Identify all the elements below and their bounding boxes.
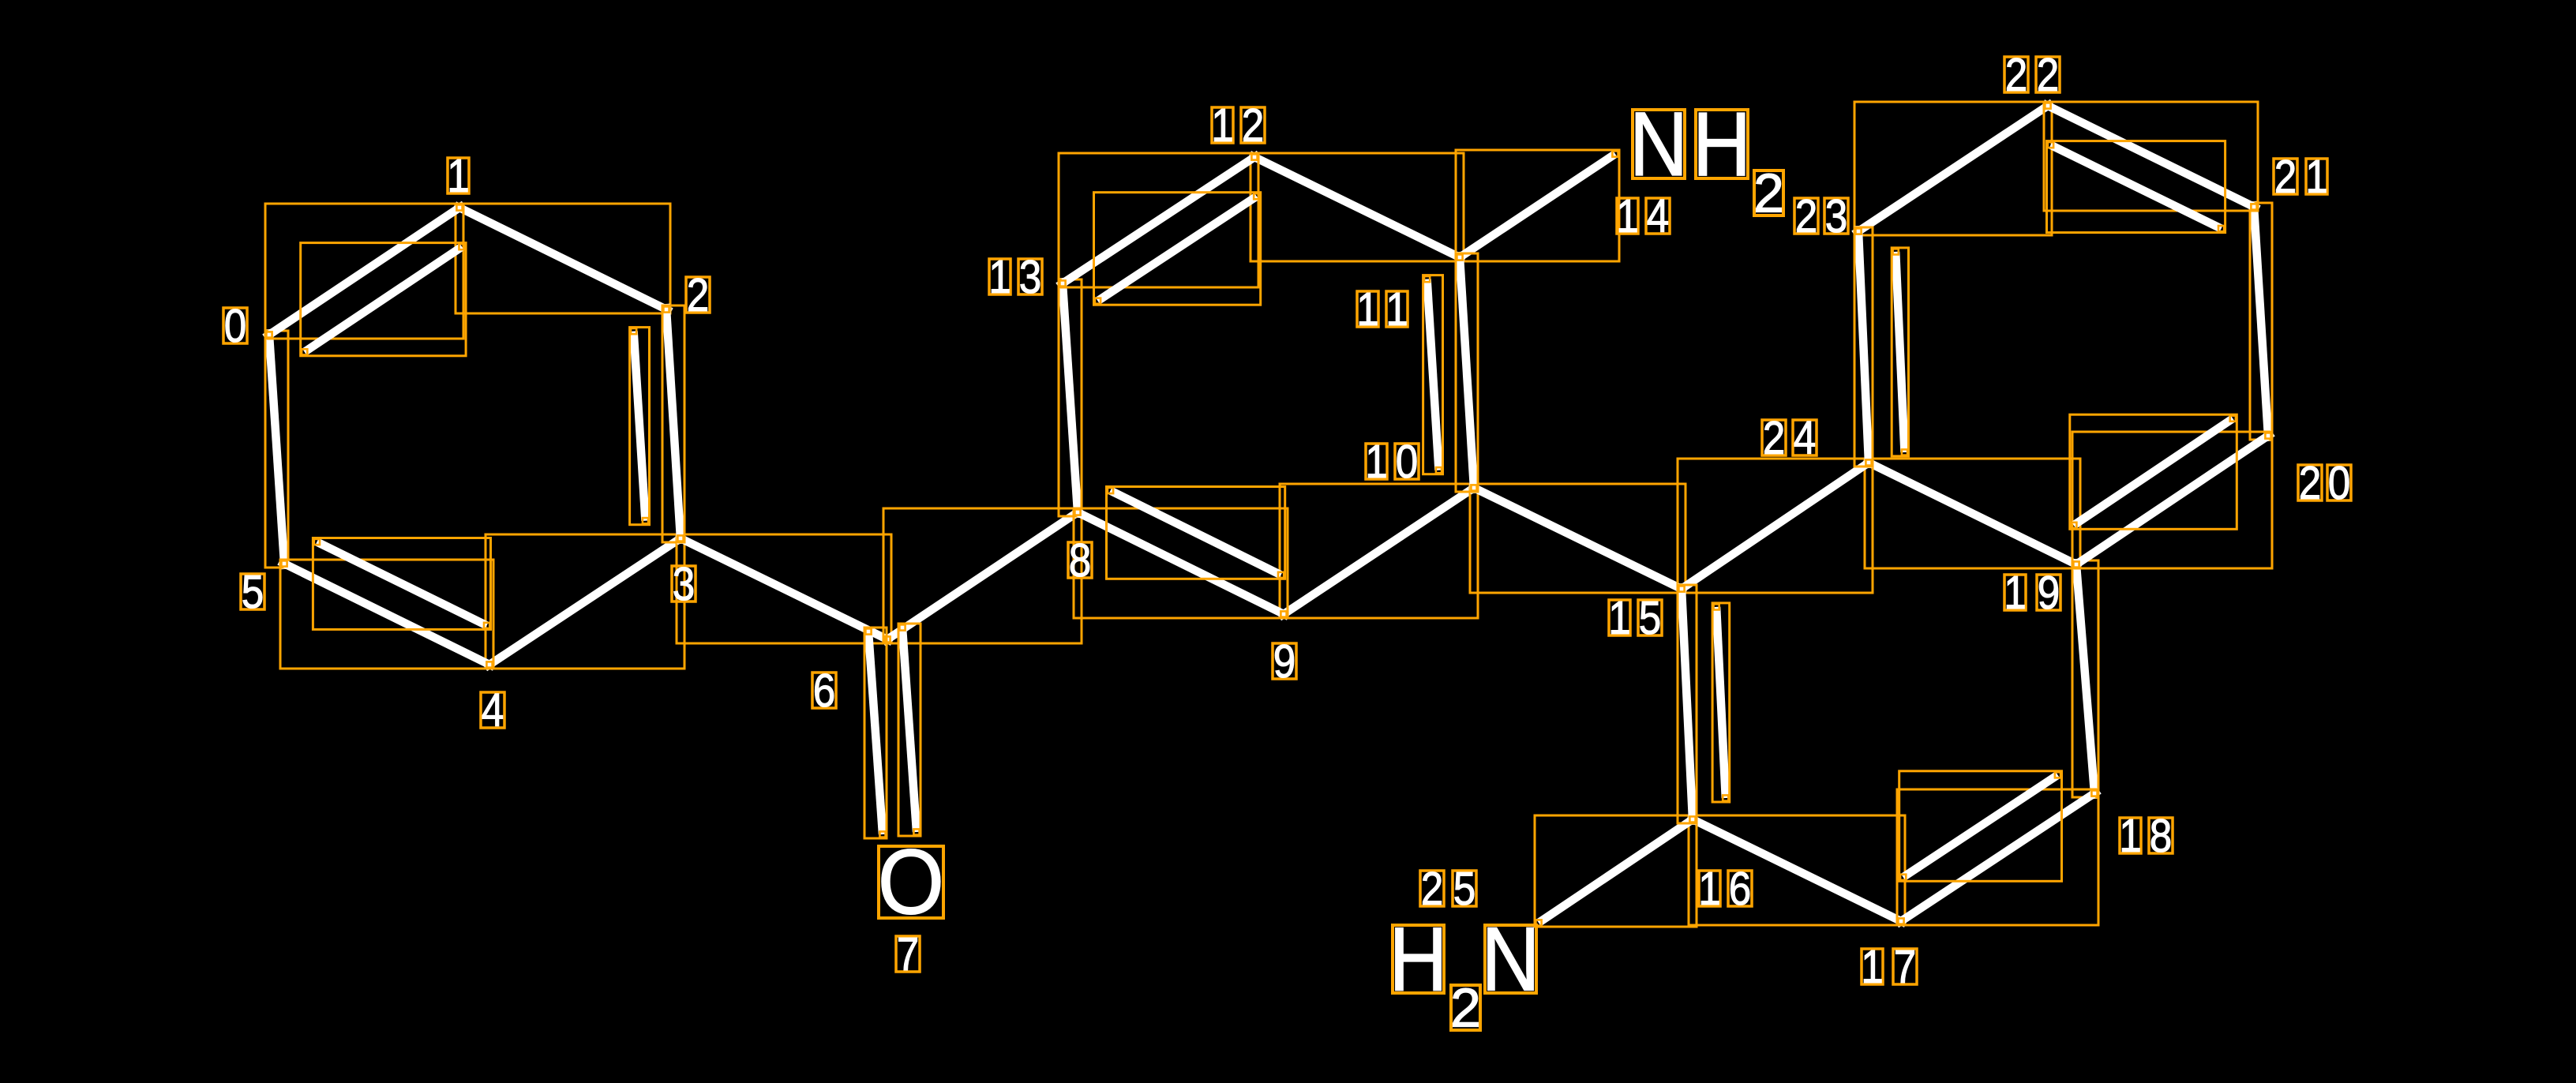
svg-text:3: 3 — [1825, 189, 1848, 242]
svg-text:5: 5 — [1639, 591, 1662, 643]
svg-text:2: 2 — [687, 268, 710, 320]
svg-text:9: 9 — [1273, 635, 1296, 687]
svg-text:2: 2 — [1242, 99, 1265, 151]
svg-text:2: 2 — [2299, 456, 2322, 508]
svg-text:0: 0 — [2328, 456, 2351, 508]
svg-text:4: 4 — [1647, 189, 1670, 242]
svg-text:1: 1 — [1365, 435, 1388, 487]
svg-text:6: 6 — [1729, 862, 1752, 914]
svg-text:2: 2 — [1763, 411, 1786, 463]
svg-text:8: 8 — [2150, 809, 2173, 861]
svg-text:5: 5 — [1453, 862, 1476, 914]
svg-text:1: 1 — [1211, 99, 1234, 151]
svg-text:N: N — [1629, 94, 1689, 195]
svg-text:N: N — [1481, 909, 1540, 1010]
svg-text:1: 1 — [988, 250, 1011, 302]
svg-text:2: 2 — [1450, 977, 1481, 1039]
svg-text:6: 6 — [813, 664, 836, 716]
svg-text:1: 1 — [1861, 940, 1884, 992]
svg-text:2: 2 — [1421, 862, 1444, 914]
svg-text:1: 1 — [1698, 862, 1721, 914]
svg-text:1: 1 — [1356, 283, 1379, 335]
svg-text:2: 2 — [2005, 48, 2028, 100]
svg-text:1: 1 — [1608, 591, 1631, 643]
svg-text:8: 8 — [1069, 534, 1092, 586]
svg-text:1: 1 — [447, 149, 470, 201]
svg-text:1: 1 — [2119, 809, 2142, 861]
svg-text:3: 3 — [1019, 250, 1042, 302]
svg-text:7: 7 — [897, 927, 920, 980]
svg-text:2: 2 — [1753, 163, 1784, 224]
svg-text:0: 0 — [1396, 435, 1419, 487]
svg-text:2: 2 — [1795, 189, 1818, 242]
svg-text:1: 1 — [2004, 566, 2027, 618]
svg-text:4: 4 — [1794, 411, 1817, 463]
svg-text:3: 3 — [673, 557, 696, 609]
svg-text:0: 0 — [224, 299, 247, 351]
svg-text:1: 1 — [1616, 189, 1639, 242]
svg-text:O: O — [878, 830, 945, 933]
svg-text:1: 1 — [2305, 150, 2328, 202]
svg-text:2: 2 — [2274, 150, 2297, 202]
svg-text:4: 4 — [482, 684, 504, 736]
svg-text:1: 1 — [1385, 283, 1408, 335]
svg-text:H: H — [1389, 909, 1448, 1010]
svg-text:9: 9 — [2038, 566, 2060, 618]
svg-text:H: H — [1693, 94, 1752, 195]
svg-text:5: 5 — [242, 565, 264, 617]
svg-text:2: 2 — [2037, 48, 2060, 100]
svg-text:7: 7 — [1894, 940, 1917, 992]
